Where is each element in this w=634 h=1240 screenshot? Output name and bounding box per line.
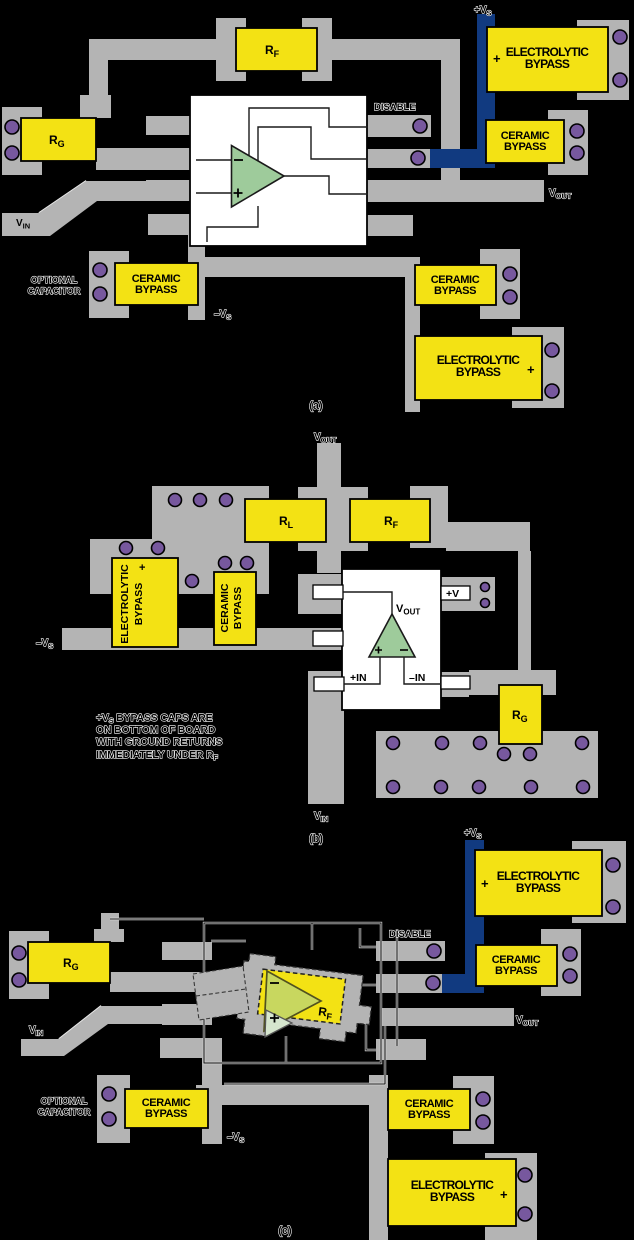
svg-text:ELECTROLYTIC: ELECTROLYTIC	[119, 564, 131, 644]
svg-text:BYPASS: BYPASS	[525, 57, 570, 71]
svg-text:DISABLE: DISABLE	[389, 929, 431, 940]
svg-text:WITH GROUND RETURNS: WITH GROUND RETURNS	[96, 736, 222, 748]
svg-text:BYPASS: BYPASS	[434, 285, 476, 297]
svg-text:BYPASS: BYPASS	[430, 1190, 475, 1204]
svg-text:+: +	[493, 51, 501, 66]
svg-text:+: +	[481, 876, 489, 891]
svg-text:(a): (a)	[309, 400, 323, 412]
svg-text:CAPACITOR: CAPACITOR	[28, 286, 81, 296]
svg-text:IMMEDIATELY UNDER RF: IMMEDIATELY UNDER RF	[96, 749, 218, 762]
svg-text:OPTIONAL: OPTIONAL	[31, 275, 78, 285]
svg-text:BYPASS: BYPASS	[504, 141, 546, 153]
svg-text:ON BOTTOM OF BOARD: ON BOTTOM OF BOARD	[96, 724, 216, 736]
svg-text:BYPASS: BYPASS	[232, 587, 244, 629]
svg-text:BYPASS: BYPASS	[408, 1109, 450, 1121]
svg-text:CERAMIC: CERAMIC	[219, 583, 231, 632]
svg-text:BYPASS: BYPASS	[456, 365, 501, 379]
svg-text:DISABLE: DISABLE	[374, 102, 416, 113]
svg-text:BYPASS: BYPASS	[135, 284, 177, 296]
svg-text:BYPASS: BYPASS	[133, 583, 145, 625]
svg-text:BYPASS: BYPASS	[145, 1108, 187, 1120]
svg-text:+: +	[500, 1187, 508, 1202]
svg-text:+IN: +IN	[350, 672, 367, 684]
svg-text:CAPACITOR: CAPACITOR	[38, 1107, 91, 1117]
svg-text:BYPASS: BYPASS	[516, 881, 561, 895]
svg-text:+: +	[139, 562, 145, 574]
svg-text:OPTIONAL: OPTIONAL	[41, 1096, 88, 1106]
svg-text:–IN: –IN	[409, 672, 425, 684]
svg-text:(b): (b)	[309, 833, 323, 845]
svg-text:BYPASS: BYPASS	[495, 965, 537, 977]
svg-text:+: +	[527, 362, 535, 377]
svg-text:(c): (c)	[278, 1225, 292, 1237]
svg-text:+V: +V	[446, 588, 459, 600]
